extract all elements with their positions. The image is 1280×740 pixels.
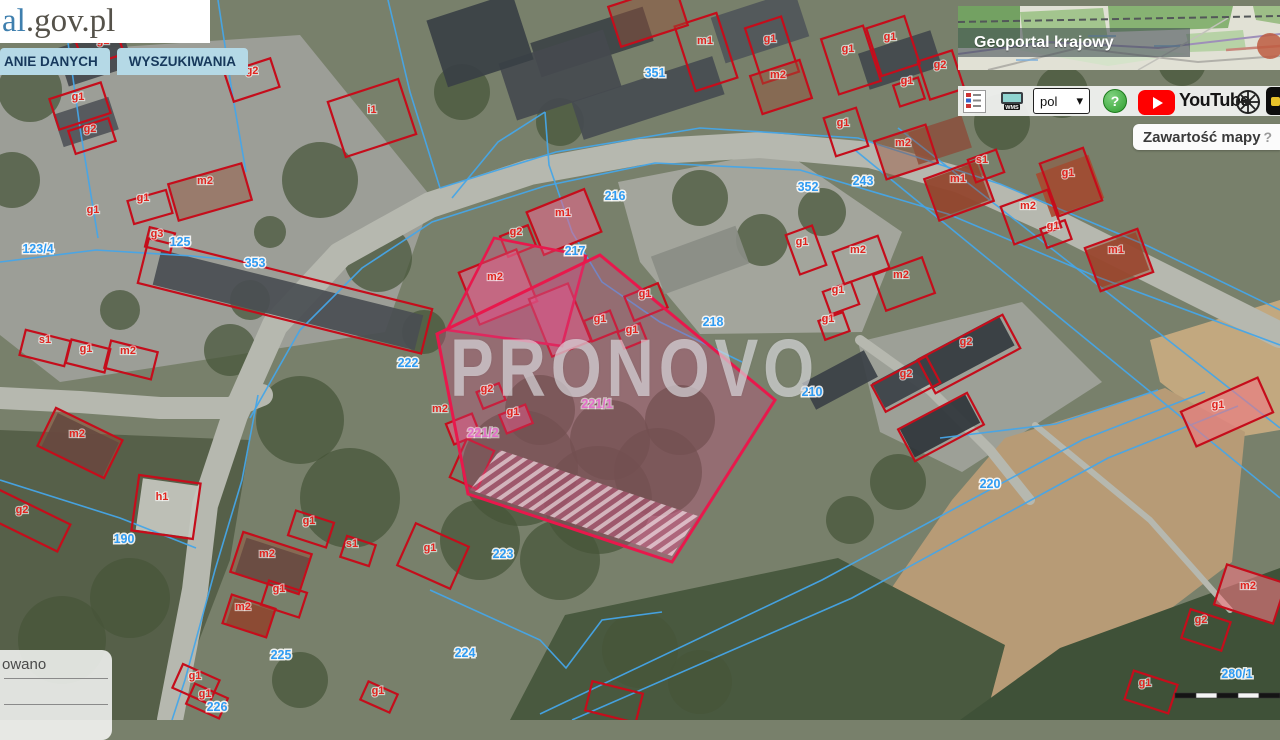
building-label: m1 — [1108, 244, 1124, 256]
map-contents-title: Zawartość mapy — [1143, 129, 1261, 146]
legend-icon[interactable] — [963, 90, 986, 113]
building-label: g1 — [764, 33, 777, 45]
parcel-label: 125 — [170, 235, 191, 249]
parcel-label: 243 — [853, 174, 874, 188]
building-label: g1 — [822, 313, 835, 325]
field-underline — [4, 704, 108, 705]
parcel-label: 225 — [271, 648, 292, 662]
building-label: m2 — [487, 271, 503, 283]
building-label: g1 — [837, 117, 850, 129]
building-label: g1 — [199, 688, 212, 700]
building-label: m1 — [950, 173, 966, 185]
building-label: g1 — [1139, 677, 1152, 689]
parcel-label: 353 — [245, 256, 266, 270]
parcel-label: 190 — [114, 532, 135, 546]
building-label: g1 — [901, 75, 914, 87]
building-label: g1 — [639, 288, 652, 300]
building-label: g2 — [510, 226, 523, 238]
building-label: m2 — [69, 428, 85, 440]
building-label: g1 — [303, 515, 316, 527]
language-value: pol — [1040, 94, 1057, 109]
building-label: g1 — [1212, 399, 1225, 411]
building-label: g1 — [832, 284, 845, 296]
building-label: g1 — [424, 542, 437, 554]
building-label: g1 — [87, 204, 100, 216]
building-label: m1 — [697, 35, 713, 47]
edge-panel-button[interactable] — [1266, 87, 1280, 115]
parcel-label: 224 — [455, 646, 476, 660]
building-label: m2 — [235, 601, 251, 613]
parcel-label: 222 — [398, 356, 419, 370]
parcel-label: 221/2 — [467, 426, 498, 440]
building-label: h1 — [156, 491, 169, 503]
building-label: g1 — [137, 192, 150, 204]
building-label: m2 — [1240, 580, 1256, 592]
building-label: m2 — [770, 69, 786, 81]
language-select[interactable]: pol ▾ — [1033, 88, 1090, 114]
wheel-icon[interactable] — [1235, 89, 1261, 120]
building-label: m2 — [120, 345, 136, 357]
parcel-label: 352 — [798, 180, 819, 194]
building-label: m1 — [555, 207, 571, 219]
building-label: g1 — [189, 670, 202, 682]
map-contents-help-icon[interactable]: ? — [1263, 129, 1272, 145]
building-label: g1 — [884, 31, 897, 43]
geoportal-app: 123/412535335135224321621721821022222019… — [0, 0, 1280, 720]
building-label: g2 — [960, 336, 973, 348]
building-label: g2 — [84, 123, 97, 135]
parcel-label: 226 — [207, 700, 228, 714]
pronovo-watermark: PRONOVO — [450, 322, 818, 416]
building-label: s1 — [346, 538, 358, 550]
building-label: m2 — [1020, 200, 1036, 212]
parcel-label: 216 — [605, 189, 626, 203]
top-tabs: ANIE DANYCH WYSZUKIWANIA — [0, 48, 248, 75]
generated-info-box: owano — [0, 650, 112, 740]
building-label: g3 — [151, 228, 164, 240]
svg-text:WMS: WMS — [1005, 105, 1019, 111]
building-label: s1 — [976, 154, 988, 166]
building-label: g1 — [80, 343, 93, 355]
building-label: g1 — [842, 43, 855, 55]
logo-text: al.gov.pl — [2, 5, 115, 38]
parcel-label: 223 — [493, 547, 514, 561]
tab-udostepnianie-danych[interactable]: ANIE DANYCH — [0, 48, 110, 75]
tab-wyszukiwania[interactable]: WYSZUKIWANIA — [117, 48, 248, 75]
minimap-title: Geoportal krajowy — [958, 34, 1114, 52]
building-label: m2 — [432, 403, 448, 415]
field-underline — [4, 678, 108, 679]
chevron-down-icon: ▾ — [1076, 93, 1083, 109]
building-label: m2 — [259, 548, 275, 560]
building-label: i1 — [367, 104, 376, 116]
edge-panel-glyph — [1271, 97, 1280, 106]
building-label: g2 — [934, 59, 947, 71]
youtube-play-icon[interactable] — [1138, 90, 1175, 115]
building-label: g1 — [1062, 167, 1075, 179]
wms-icon[interactable]: WMS — [1000, 92, 1024, 111]
building-label: g2 — [16, 504, 29, 516]
building-label: m2 — [850, 244, 866, 256]
building-label: m2 — [893, 269, 909, 281]
parcel-label: 280/1 — [1221, 667, 1252, 681]
minimap-title-band: Geoportal krajowy — [958, 28, 1190, 57]
help-icon[interactable]: ? — [1103, 89, 1127, 113]
parcel-label: 220 — [980, 477, 1001, 491]
generated-label: owano — [2, 656, 46, 673]
building-label: m2 — [895, 137, 911, 149]
toolbar: WMS pol ▾ ? YouTube — [958, 86, 1280, 116]
parcel-label: 217 — [565, 244, 586, 258]
map-contents-panel-header[interactable]: Zawartość mapy ? — [1133, 124, 1280, 150]
building-label: g1 — [372, 685, 385, 697]
building-label: g1 — [796, 236, 809, 248]
building-label: g2 — [1195, 614, 1208, 626]
parcel-label: 351 — [645, 66, 666, 80]
play-triangle-icon — [1153, 97, 1163, 109]
building-label: g1 — [72, 91, 85, 103]
building-label: g1 — [1047, 220, 1060, 232]
building-label: g1 — [273, 583, 286, 595]
scale-bar — [1175, 693, 1280, 698]
building-label: g2 — [900, 368, 913, 380]
building-label: s1 — [39, 334, 51, 346]
building-label: m2 — [197, 175, 213, 187]
parcel-label: 123/4 — [22, 242, 53, 256]
geoportal-logo[interactable]: al.gov.pl — [0, 0, 210, 43]
